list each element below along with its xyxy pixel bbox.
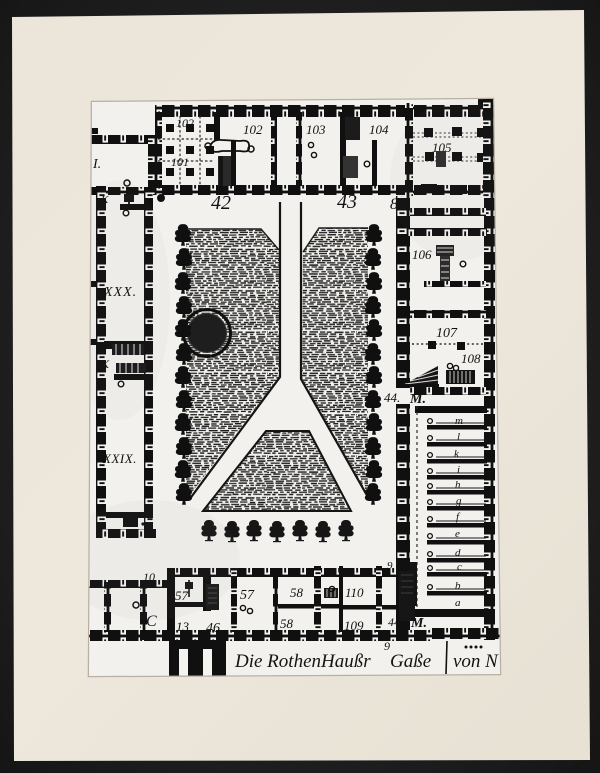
svg-text:a: a [455, 597, 461, 609]
svg-text:c: c [457, 561, 462, 573]
svg-text:101: 101 [171, 155, 189, 169]
svg-text:102: 102 [176, 116, 194, 130]
svg-text:Die RothenHaußr: Die RothenHaußr [234, 651, 371, 672]
svg-text:von N: von N [453, 651, 499, 672]
svg-text:b: b [455, 580, 461, 592]
svg-text:h: h [455, 479, 461, 491]
svg-text:d: d [455, 547, 461, 559]
svg-text:44.: 44. [388, 615, 403, 629]
svg-text:102: 102 [243, 122, 263, 137]
svg-text:13: 13 [176, 619, 190, 634]
svg-text:m: m [455, 415, 463, 427]
svg-text:I.: I. [92, 157, 101, 172]
svg-text:Gaße: Gaße [390, 651, 431, 672]
svg-text:i: i [457, 464, 460, 476]
svg-text:g: g [456, 495, 462, 507]
svg-text:110: 110 [345, 585, 364, 600]
svg-text:M.: M. [409, 392, 426, 407]
svg-text:42: 42 [211, 192, 231, 214]
svg-text:l: l [457, 431, 460, 443]
svg-text:M.: M. [410, 616, 427, 631]
svg-text:58: 58 [280, 616, 294, 631]
svg-text:104: 104 [369, 122, 389, 137]
svg-text:109: 109 [344, 618, 364, 633]
svg-text:44.: 44. [384, 390, 400, 405]
svg-text:107: 107 [436, 326, 458, 341]
svg-text:108: 108 [461, 351, 481, 366]
svg-text:e: e [455, 528, 460, 540]
svg-text:57: 57 [240, 588, 255, 603]
svg-text:58: 58 [290, 585, 304, 600]
svg-text:XXIX.: XXIX. [102, 451, 137, 466]
svg-text:103: 103 [306, 122, 326, 137]
svg-text:43: 43 [337, 191, 357, 213]
svg-text:46: 46 [206, 621, 220, 636]
